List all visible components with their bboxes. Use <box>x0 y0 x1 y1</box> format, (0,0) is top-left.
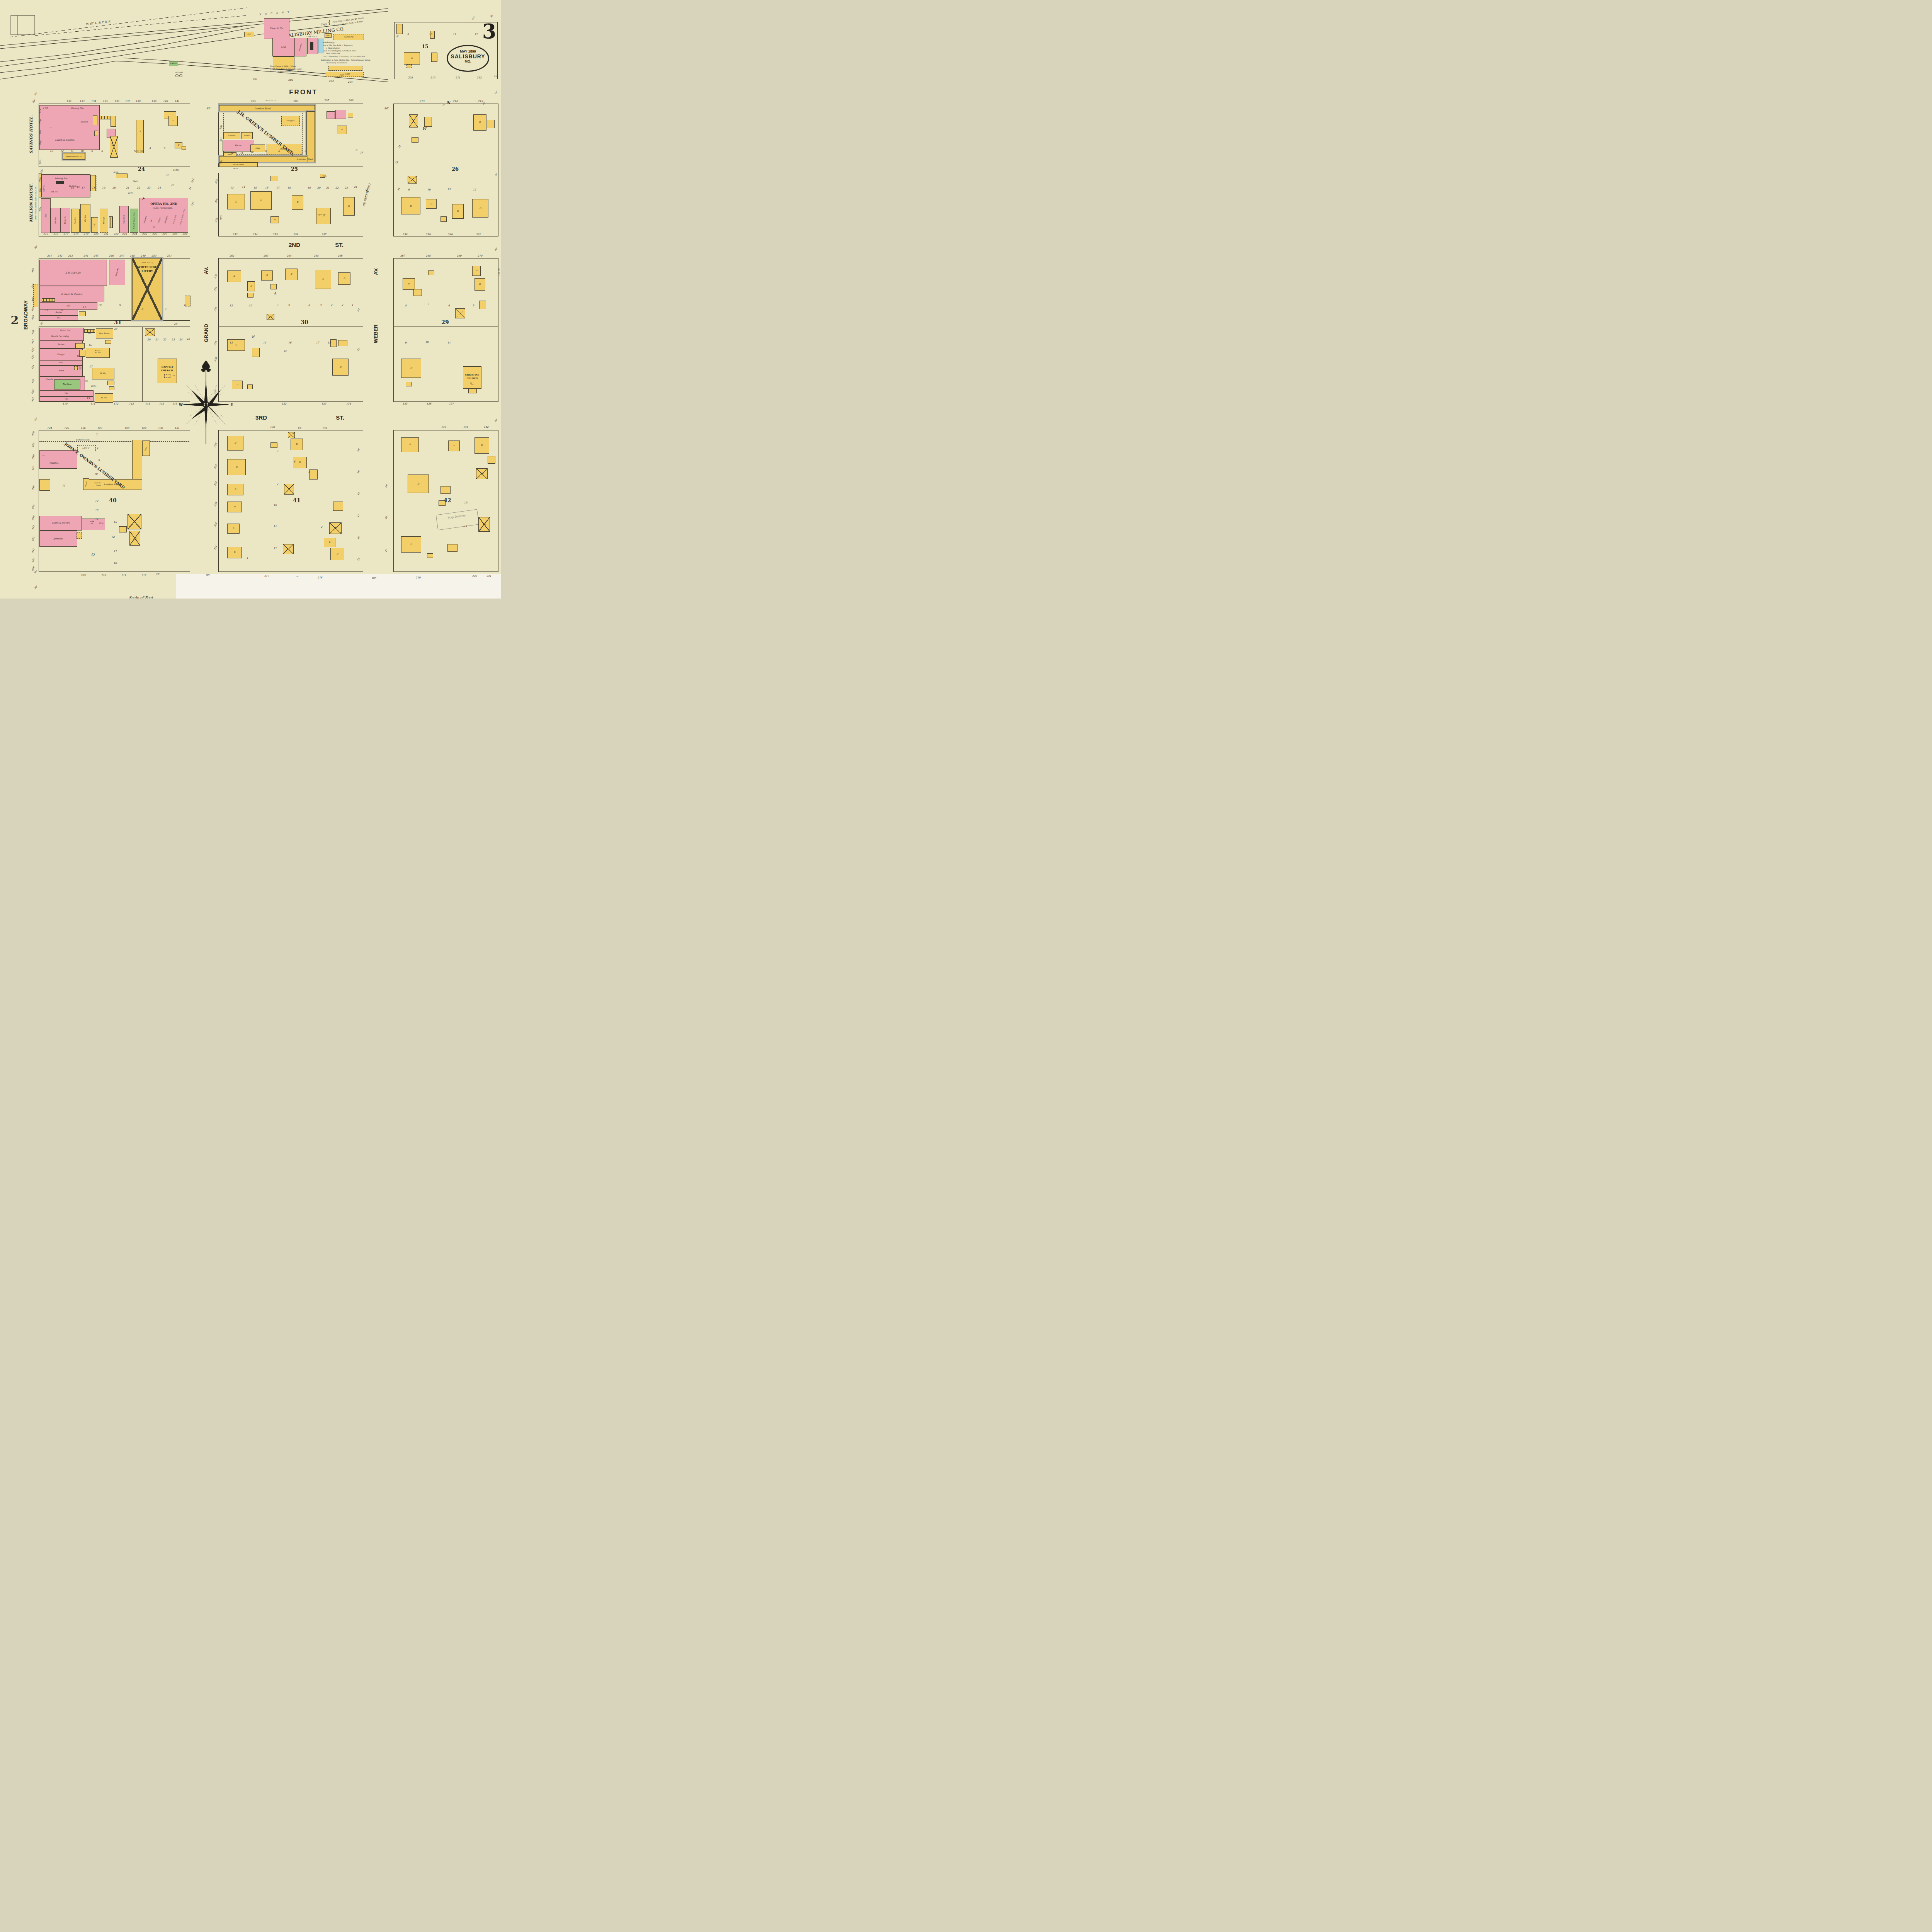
mill-note: in Off. Fuel: Coal & Cobs. No Light. <box>270 68 302 70</box>
building-label: D <box>344 277 345 280</box>
building-label: D <box>260 199 262 202</box>
block-31b-label: Hardw. <box>45 378 54 381</box>
block-31b-text: 112 <box>114 403 118 405</box>
block-24a-savings-hotel-text: 132 <box>66 100 71 103</box>
block-25a-greens-lumber-building: Hardw. <box>241 132 253 139</box>
street-3rd-st: ST. <box>336 414 344 421</box>
block-40-ownbys-label: Hardw., <box>49 462 59 464</box>
block-31b-building <box>145 328 155 336</box>
block-24b-million-house-text: 215 <box>43 233 48 236</box>
block-24a-savings-hotel-building: D <box>175 142 182 148</box>
building-label: 2 <box>134 520 135 523</box>
block-25a-greens-lumber-text: 11 <box>240 152 243 155</box>
building-label: Jewelry. <box>54 537 63 540</box>
block-25b-building: D <box>316 208 331 224</box>
block-24a-savings-hotel-text: Agric. Imps. <box>134 150 145 152</box>
block-25b-text: 23 <box>345 187 348 189</box>
building-label: W. Ho. <box>100 372 106 374</box>
block-40-ownbys-text: 25' <box>156 573 160 575</box>
block-15-text: 25 <box>493 75 497 78</box>
block-25b-text: 18 <box>287 187 291 189</box>
building-label: D <box>322 278 324 281</box>
block-29-text: 8 <box>405 304 406 307</box>
block-24a-savings-hotel-label: Dining Rm <box>71 107 83 110</box>
block-42-text: 220 <box>472 575 477 578</box>
block-40-ownbys-label: 14' <box>42 455 44 457</box>
building-label: Confec. <box>74 217 76 224</box>
oil-tank-icon <box>176 75 179 77</box>
block-29-text: 135 <box>403 403 407 405</box>
block-31b-label: 3 <box>166 374 167 376</box>
block-31b-building <box>79 350 85 357</box>
block-24b-million-house-building <box>109 216 113 228</box>
oil-tank-icon <box>180 75 182 77</box>
block-42-text: 141 <box>463 426 468 429</box>
block-31b-building: W. Ho. <box>92 368 114 379</box>
block-40-ownbys-text: 126 <box>81 427 85 430</box>
block-31a-text: 25' <box>174 323 177 325</box>
block-42-text: 11 <box>464 525 467 527</box>
building-label: Barber <box>55 311 62 313</box>
block-25a-greens-lumber-building <box>306 111 315 162</box>
block-41-text: 5 <box>308 471 310 473</box>
block-25b-text: 257 <box>321 233 326 236</box>
building-label: D <box>235 344 237 346</box>
building-label: D <box>234 551 235 554</box>
mill-note: 202 <box>288 79 293 82</box>
building-label: Vac. <box>57 317 61 319</box>
block-41-building <box>333 502 343 511</box>
block-42-building: 1½ <box>476 468 488 479</box>
block-24a-savings-hotel-text: 5 <box>139 130 141 133</box>
block-25b-text: 19 <box>308 187 311 189</box>
block-24b-million-house-text: HEAT: STEAM. LIGHTS: ELEC. & COAL OIL. <box>35 186 37 219</box>
mill-note: { <box>327 19 331 26</box>
block-30-text: 134 <box>346 403 351 405</box>
block-24b-million-house-text: 19 <box>102 187 105 189</box>
scale-title: Scale of Feet. <box>129 596 154 599</box>
mill-building: Elevator. <box>295 38 306 56</box>
block-25b-text: 254 <box>253 233 257 236</box>
building-label: D <box>235 488 236 491</box>
block-40-ownbys-label: Ho. <box>90 523 93 525</box>
block-41-text: 218 <box>318 577 322 579</box>
block-40-ownbys-building <box>39 479 50 491</box>
block-30-building <box>247 384 253 389</box>
block-30-text: 265 <box>314 255 318 257</box>
block-25b-text: W.Ho. <box>322 175 327 177</box>
block-31b-building <box>74 366 78 370</box>
block-41-text: 11 <box>274 525 277 527</box>
building-label: D <box>234 506 235 508</box>
block-31a-text: 6 <box>184 304 185 307</box>
building-label: D <box>476 270 477 272</box>
block-24b-million-house-building: Barber. <box>80 204 90 233</box>
building-label: Bl.Sm.& Wagon Shop. <box>133 212 135 230</box>
block-24a-savings-hotel-label: 2 Off. <box>43 107 48 109</box>
building-label: D <box>411 57 413 60</box>
block-29-label: CHURCH <box>467 377 478 379</box>
building-label: D <box>235 442 236 444</box>
block-30-building: D <box>247 281 255 291</box>
block-29-building: D <box>401 359 421 378</box>
block-25a-greens-lumber-text: 7 <box>290 150 291 153</box>
block-41-building <box>309 469 318 480</box>
building-label: 1½ <box>133 537 136 539</box>
block-31a-text: 10 <box>98 304 101 307</box>
block-40-ownbys-text: BOARD FENCE. <box>76 439 90 441</box>
street-2nd: 2ND <box>289 241 300 248</box>
building-label: D <box>250 285 252 287</box>
mill-note: 1 Flour Packer. <box>326 47 340 49</box>
block-24b-million-house-text: 22 <box>137 187 140 189</box>
block-24b-million-house-text: 17 <box>82 187 85 189</box>
block-31a-label: (COR. IR. CL.) <box>141 262 153 264</box>
block-40-ownbys-text: LATH 6' <box>82 447 89 449</box>
block-25b-building: D <box>250 191 272 210</box>
block-31a-text: 242 <box>58 255 62 257</box>
block-29-text: 267 <box>400 255 405 257</box>
block-41-text: 6 <box>294 461 295 463</box>
block-24b-million-house-text: 221 <box>104 233 108 236</box>
block-26-text: 258 <box>403 233 407 236</box>
block-24b-million-house-text: 20 <box>112 187 116 189</box>
block-30-text: 5 <box>308 304 310 306</box>
building-label: D <box>337 553 338 555</box>
block-26-building <box>408 176 417 184</box>
mill-note: Machinery: <box>322 41 335 44</box>
block-29-text: 29 <box>441 320 449 325</box>
block-42-building: 1½ <box>478 517 490 532</box>
block-30-text: 4 <box>320 304 321 306</box>
block-26-text: 260 <box>448 233 452 236</box>
block-30-building: D <box>232 381 243 389</box>
building-label: D <box>410 204 412 207</box>
block-25a-greens-lumber-building: Lumber <box>223 132 240 139</box>
block-25b-text: 16 <box>265 187 268 189</box>
block-31a-text: 31 <box>114 320 121 325</box>
block-24a-savings-hotel-text: 12 <box>60 150 63 153</box>
block-26-text: 26 <box>452 167 459 172</box>
block-24b-million-house-label: Dining Rm <box>55 177 67 180</box>
mill-building: B.&W.Ho. <box>169 61 178 66</box>
map-annotation: 80' <box>206 574 210 577</box>
block-29-label: 18 <box>469 383 471 384</box>
block-31b-text: 22 <box>163 338 166 341</box>
block-40-ownbys-text: 9 <box>98 459 100 462</box>
block-26-text: 214 <box>453 100 457 103</box>
block-41-building: D <box>227 484 243 495</box>
block-31b-text: 16' <box>80 348 82 350</box>
block-25a-greens-lumber-building: Hardw. <box>223 140 254 151</box>
block-40-ownbys-text: 212 <box>141 574 146 577</box>
block-31b-building: Tin Shop. <box>54 379 80 389</box>
block-30-text: 133 <box>321 403 326 405</box>
street-weber-av: AV. <box>373 267 379 275</box>
block-29-text: 268 <box>426 255 430 257</box>
block-30-building <box>270 284 277 289</box>
block-24b-million-house-label: OPERA HO. 2ND <box>150 202 177 206</box>
block-42-text: 42 <box>444 498 451 503</box>
block-31b-building: Gro. <box>39 360 83 366</box>
block-24b-million-house-text: 228 <box>172 233 177 236</box>
block-31a-building: Billiards <box>109 260 125 285</box>
block-42-text: 142 <box>484 426 488 429</box>
block-30-text: 3 <box>331 304 332 306</box>
block-30-text: 2 <box>342 304 343 306</box>
block-24b-million-house-label: Off 1st <box>51 191 57 193</box>
block-24a-savings-hotel-building <box>93 115 97 125</box>
building-label: Barber <box>58 344 65 345</box>
block-24a-savings-hotel-text: 24 <box>138 167 145 172</box>
block-24a-savings-hotel-text: 8 <box>101 150 103 153</box>
street-2nd-st: ST. <box>335 241 344 248</box>
block-26-text: 12 <box>473 189 476 191</box>
block-26-text: 14 <box>447 188 451 190</box>
block-24b-million-house-text: 15 <box>77 186 80 188</box>
block-41-building: D <box>330 548 344 560</box>
building-label: D <box>481 444 483 447</box>
block-15-text: 203 <box>408 77 413 79</box>
block-29-building <box>479 301 486 309</box>
block-41-text: 25' <box>295 575 299 578</box>
block-25b-text: 24 <box>354 186 357 189</box>
block-41-text: 1 <box>247 557 248 560</box>
block-25b-text: 22 <box>335 187 338 189</box>
block-30-building: D <box>315 270 331 289</box>
block-42-text: 219 <box>416 577 420 579</box>
block-29-text: 9 <box>405 342 406 344</box>
building-label: B.&W.Ho. <box>170 63 177 65</box>
block-41-text: 139 <box>322 427 327 430</box>
block-30-building <box>218 327 363 327</box>
block-30-text: 15 <box>284 350 287 352</box>
block-29-building: D <box>403 278 415 290</box>
block-41-building <box>283 544 294 554</box>
block-25a-greens-lumber-building <box>335 110 346 119</box>
block-24a-savings-hotel-building <box>110 136 118 158</box>
building-label: Shingles <box>85 481 88 487</box>
block-40-ownbys-text: 11 <box>62 485 65 487</box>
block-24b-million-house-text: MILLION HOUSE. <box>29 183 33 222</box>
block-31b-text: 455½ <box>95 350 100 352</box>
block-30-text: 12 <box>230 304 233 307</box>
block-41-text: 12 <box>274 547 277 550</box>
block-42-building <box>440 486 451 494</box>
block-24a-savings-hotel-label: Kitchen <box>80 121 88 123</box>
block-24a-savings-hotel-text: 136 <box>114 100 119 103</box>
block-25b-text: 14 <box>242 186 245 189</box>
block-29-label: CHRISTIAN <box>465 374 480 376</box>
block-24a-savings-hotel-text: 134 <box>91 100 96 103</box>
block-31a-building: Vac. <box>39 315 78 320</box>
block-31a-text: 243 <box>68 255 73 257</box>
block-30-text: 1 <box>352 304 353 306</box>
map-annotation: 80' <box>207 107 211 111</box>
block-42-text: 10 <box>464 502 467 504</box>
block-31b-text: 113 <box>129 403 134 405</box>
block-26-text: 215 <box>478 100 483 103</box>
block-25a-greens-lumber-text: 208 <box>349 99 353 102</box>
block-24b-million-house-text: 225 <box>142 233 147 236</box>
block-24b-million-house-text: 219 <box>83 233 88 236</box>
block-25a-greens-lumber-text: 25 <box>291 167 298 172</box>
block-41-building: 2 <box>284 484 294 495</box>
building-label: Barber. <box>54 217 56 224</box>
block-31a-label: LIVERY <box>141 270 153 273</box>
block-40-ownbys-text: O <box>91 553 94 557</box>
block-40-ownbys-text: 18 <box>114 562 117 565</box>
building-label: D <box>340 366 342 368</box>
block-41-text: 25' <box>298 427 301 429</box>
block-31a-text: 11 <box>83 306 86 309</box>
block-30-building <box>338 340 347 346</box>
block-25a-greens-lumber-text: I R O N <box>233 168 238 170</box>
building-label: Sal. <box>45 214 47 218</box>
block-29-building <box>393 327 498 327</box>
block-25b-building: D <box>292 195 303 210</box>
block-26-text: W <box>422 127 426 131</box>
building-label: D <box>172 120 174 122</box>
block-24a-savings-hotel-text: 1 <box>184 148 185 151</box>
block-42-building: D <box>401 437 419 452</box>
block-25a-greens-lumber-building: Shingles. <box>281 116 300 126</box>
mill-building: Flour W. Ho. <box>264 18 289 39</box>
building-label: D <box>479 283 481 286</box>
building-label: Hardw. <box>235 145 242 146</box>
block-15-text: 212 <box>477 77 481 79</box>
block-25b-text: Mill'y. <box>220 215 222 220</box>
block-25a-greens-lumber-building <box>327 111 335 119</box>
block-40-ownbys-text: 15 <box>114 521 117 524</box>
block-41-building: D <box>227 502 242 512</box>
mill-note: 1 Eng. 40 H.P. <box>306 36 316 37</box>
block-30-building <box>252 348 260 357</box>
block-24b-million-house-building: Storage <box>100 209 108 233</box>
block-41-text: 217 <box>264 575 269 578</box>
block-24b-million-house-text: 26 <box>171 184 174 186</box>
mill-note: 1st: 4 Dbl. Set Rolls, 1 Separator, <box>323 44 353 46</box>
building-label: Tin Shop. <box>63 383 72 385</box>
block-24b-million-house-label: OPEN 1st <box>43 185 45 192</box>
compass-e: E <box>231 403 233 407</box>
building-label: Off. <box>94 223 96 226</box>
building-label: D <box>299 461 301 464</box>
block-41-text: 7 <box>277 450 278 452</box>
street-weber: WEBER <box>373 325 379 343</box>
block-42-building <box>447 544 457 552</box>
block-31b-text: 19 <box>87 397 90 400</box>
building-label: Shingles. <box>286 120 295 122</box>
block-24b-million-house-text: 227 <box>162 233 167 236</box>
block-31b-building <box>105 340 111 344</box>
block-30-text: 6 <box>288 304 290 306</box>
mill-note: Barrels of Water and Buckets each Fl. <box>270 71 304 73</box>
building-label: Hardw. <box>244 135 250 136</box>
block-25b-text: 255 <box>273 233 277 236</box>
block-25b-text: 17 <box>276 187 279 189</box>
block-41-text: 10 <box>274 504 277 507</box>
block-31b-building <box>107 381 114 385</box>
block-29-text: 6 <box>448 304 450 307</box>
block-30-text: 262 <box>230 255 234 257</box>
building-label: 2 <box>288 488 290 490</box>
building-label: Sal. <box>66 305 71 307</box>
block-26-building: D <box>472 199 488 218</box>
building-label: D <box>235 201 237 203</box>
block-41-text: 138 <box>270 426 275 429</box>
block-26-text: 259 <box>426 233 430 236</box>
block-40-ownbys-text: 127 <box>97 427 102 430</box>
building-label: Storage <box>103 217 105 224</box>
building-label: 2 <box>335 527 336 529</box>
block-25a-greens-lumber-building <box>348 113 353 117</box>
block-31a-text: 241 <box>47 255 52 257</box>
block-15-text: 15 <box>422 44 429 49</box>
block-30-text: 17 <box>316 342 319 344</box>
block-31a-building: 2 D.G.& Clo. <box>39 260 107 286</box>
block-30-building <box>330 339 337 347</box>
block-31b-text: 15 <box>88 344 92 347</box>
block-29-text: 11 <box>447 342 451 344</box>
building-label: Lime <box>255 147 260 149</box>
block-31a-text: 7 <box>165 308 166 311</box>
block-29-building <box>413 289 422 296</box>
building-label: Sash & Doors. <box>233 164 244 165</box>
block-24b-million-house-text: 244½ <box>133 180 138 183</box>
block-29-text: 5 <box>473 304 474 307</box>
block-25a-greens-lumber-text: I R O N C L A D <box>265 100 276 102</box>
block-24a-savings-hotel-text: SAVINGS HOTEL. <box>29 116 33 154</box>
mill-building <box>328 66 362 71</box>
block-24b-million-house-building: Flour S. <box>60 208 70 233</box>
street-front: FRONT <box>289 88 318 96</box>
block-40-ownbys-text: 210 <box>101 574 106 577</box>
block-15-text: 12 <box>474 33 478 36</box>
block-30-building: D <box>338 272 350 285</box>
block-40-ownbys-text: 209 <box>81 574 85 577</box>
paper-edge <box>176 574 501 599</box>
block-42-building: D <box>401 536 421 553</box>
block-15-building <box>406 65 412 68</box>
block-24b-million-house-building: Off. <box>91 217 98 233</box>
block-26-text: 213 <box>420 100 424 103</box>
block-31a-building: Sal. <box>39 302 97 310</box>
building-label: D <box>410 543 412 546</box>
block-24b-million-house-text: 23 <box>147 187 150 189</box>
block-31b-label: CHURCH. <box>161 369 173 372</box>
block-31b-label: Gents Furnishg <box>51 335 69 338</box>
block-41-building: D <box>227 547 242 558</box>
block-15-building: D <box>404 52 420 65</box>
building-label: Beer Depot. <box>99 333 110 335</box>
block-31a-building <box>33 284 38 307</box>
block-30-text: 132 <box>282 403 286 405</box>
building-label: Billiards <box>115 268 119 277</box>
block-40-ownbys-text: 17 <box>114 550 117 553</box>
mill-note: 3rd: 1 Plansifter, 2 Scourers, 1 Corn Me… <box>323 56 366 58</box>
block-24a-savings-hotel-text: 137 <box>125 100 130 103</box>
block-31b-text: 114 <box>145 403 150 405</box>
block-31a-building <box>185 296 190 306</box>
building-label: D <box>274 219 276 221</box>
block-31a-text: 248 <box>130 255 134 257</box>
building-label: D <box>409 444 411 446</box>
block-40-ownbys-building <box>119 526 127 532</box>
block-25a-greens-lumber-text: 9 <box>265 150 267 153</box>
block-24b-million-house-building <box>56 181 64 184</box>
block-31b-building: W. Ho. <box>95 393 113 403</box>
